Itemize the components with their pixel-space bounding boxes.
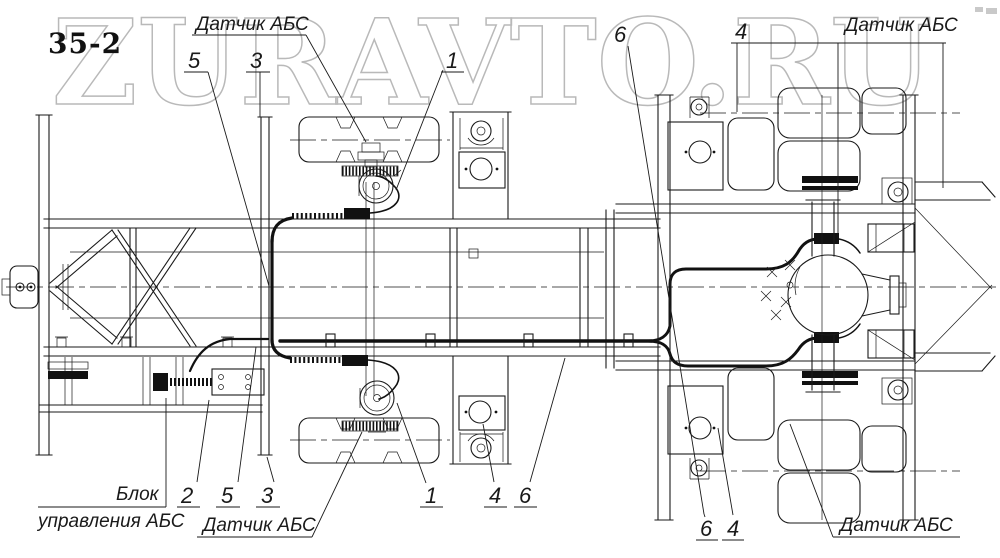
rear-bogie (616, 88, 995, 523)
frame-clip (469, 249, 478, 258)
callout-bottom-right-4: 4 (727, 516, 739, 541)
roller-sensor-wheel (888, 182, 908, 202)
abs-wire-harness (272, 176, 860, 399)
label-control-block-line2: управления АБС (36, 511, 185, 532)
callout-top-3: 3 (250, 48, 263, 73)
callout-top-4: 4 (735, 19, 747, 44)
brake-drum (360, 381, 394, 415)
callout-top-6: 6 (614, 22, 627, 47)
callout-bottom-1: 1 (425, 483, 437, 508)
roller-sensor-wheel (691, 460, 707, 476)
sensor-connector (814, 233, 839, 244)
figure-number: 35-2 (48, 27, 122, 60)
label-sensor-bottom-center: Датчик АБС (201, 515, 316, 536)
callout-bottom-2: 2 (180, 483, 193, 508)
callout-bottom-5: 5 (221, 483, 234, 508)
roller-sensor-wheel (888, 380, 908, 400)
watermark-fragment (975, 7, 983, 12)
brake-chamber-bottom (868, 330, 915, 360)
front-axle-bottom-wheel (290, 381, 450, 463)
step-plate (48, 362, 88, 369)
sensor-connector (344, 208, 370, 219)
brake-chamber-top (868, 222, 915, 252)
callout-bottom-4: 4 (489, 483, 501, 508)
callout-bottom-6: 6 (519, 483, 532, 508)
label-sensor-bottom-right: Датчик АБС (838, 515, 953, 536)
bogie-wheels-bottom (728, 368, 906, 523)
mounting-plate (212, 369, 264, 395)
figure-abs-wiring-diagram: ZURAVTO.RU (0, 0, 1000, 558)
label-control-block-line1: Блок (116, 484, 160, 505)
rail-clips (55, 337, 234, 347)
callout-top-5: 5 (188, 48, 201, 73)
callout-top-1: 1 (446, 48, 458, 73)
label-sensor-top-right: Датчик АБС (843, 15, 958, 36)
step-plate-dark (48, 371, 88, 379)
label-sensor-top-left: Датчик АБС (194, 14, 309, 35)
front-frame (2, 115, 660, 455)
callout-bottom-right-6: 6 (700, 516, 713, 541)
support-bracket-bottom (450, 356, 511, 464)
callout-bottom-3: 3 (261, 483, 274, 508)
bogie-bracket-bottom (668, 386, 723, 479)
sensor-connector (342, 355, 368, 366)
watermark-fragment (986, 8, 997, 14)
chassis-plan-drawing: ZURAVTO.RU (0, 0, 1000, 558)
